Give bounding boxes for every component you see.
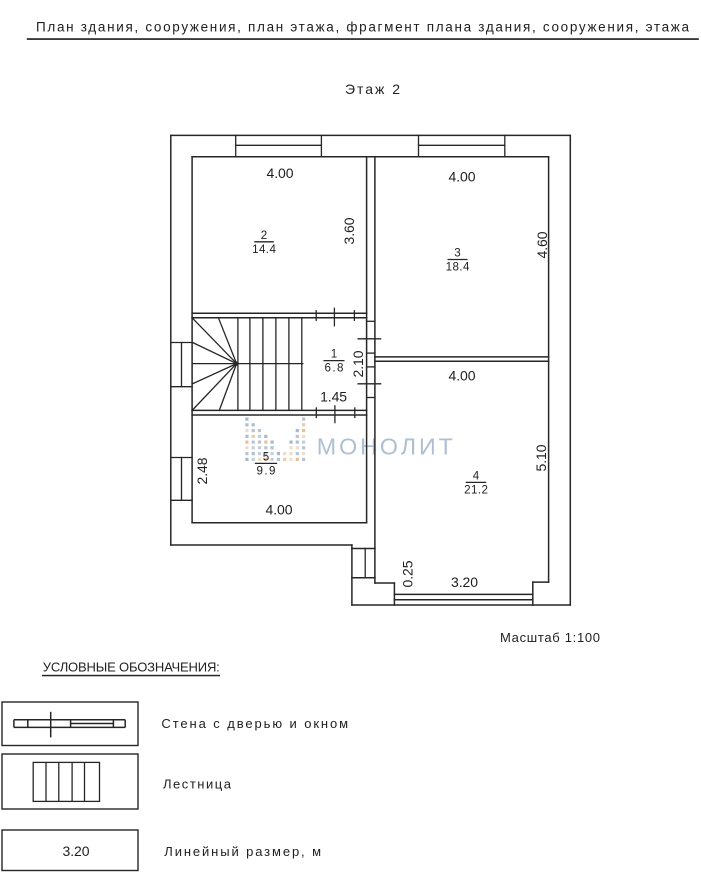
svg-text:Этаж 2: Этаж 2 bbox=[345, 81, 400, 97]
svg-text:3.20: 3.20 bbox=[63, 843, 90, 859]
svg-text:3.20: 3.20 bbox=[451, 574, 478, 590]
svg-text:4: 4 bbox=[473, 469, 480, 482]
svg-text:2.48: 2.48 bbox=[194, 457, 210, 484]
svg-text:9.9: 9.9 bbox=[257, 464, 276, 477]
svg-text:4.00: 4.00 bbox=[449, 368, 476, 384]
svg-text:3.60: 3.60 bbox=[341, 217, 357, 244]
svg-text:2.10: 2.10 bbox=[350, 350, 366, 377]
svg-text:1.45: 1.45 bbox=[320, 389, 347, 405]
svg-text:МОНОЛИТ: МОНОЛИТ bbox=[317, 434, 456, 460]
svg-text:1: 1 bbox=[331, 348, 337, 361]
svg-text:4.00: 4.00 bbox=[449, 169, 476, 185]
svg-text:5: 5 bbox=[263, 450, 269, 463]
svg-text:4.00: 4.00 bbox=[267, 165, 294, 181]
svg-text:4.00: 4.00 bbox=[266, 502, 293, 518]
svg-text:5.10: 5.10 bbox=[533, 444, 549, 471]
svg-text:Масштаб 1:100: Масштаб 1:100 bbox=[500, 630, 600, 645]
svg-text:18.4: 18.4 bbox=[446, 261, 470, 274]
svg-text:План здания, сооружения, план: План здания, сооружения, план этажа, фра… bbox=[36, 19, 689, 34]
svg-text:4.60: 4.60 bbox=[534, 231, 550, 258]
svg-text:Стена с дверью и окном: Стена с дверью и окном bbox=[161, 716, 348, 731]
svg-text:3: 3 bbox=[454, 247, 460, 260]
svg-text:УСЛОВНЫЕ ОБОЗНАЧЕНИЯ:: УСЛОВНЫЕ ОБОЗНАЧЕНИЯ: bbox=[43, 660, 220, 675]
svg-text:21.2: 21.2 bbox=[464, 483, 488, 496]
svg-text:14.4: 14.4 bbox=[252, 243, 276, 256]
svg-text:0.25: 0.25 bbox=[400, 560, 416, 587]
svg-text:6.8: 6.8 bbox=[325, 362, 344, 375]
svg-text:Лестница: Лестница bbox=[163, 777, 232, 792]
svg-text:Линейный размер, м: Линейный размер, м bbox=[164, 844, 321, 859]
svg-text:2: 2 bbox=[261, 229, 267, 242]
